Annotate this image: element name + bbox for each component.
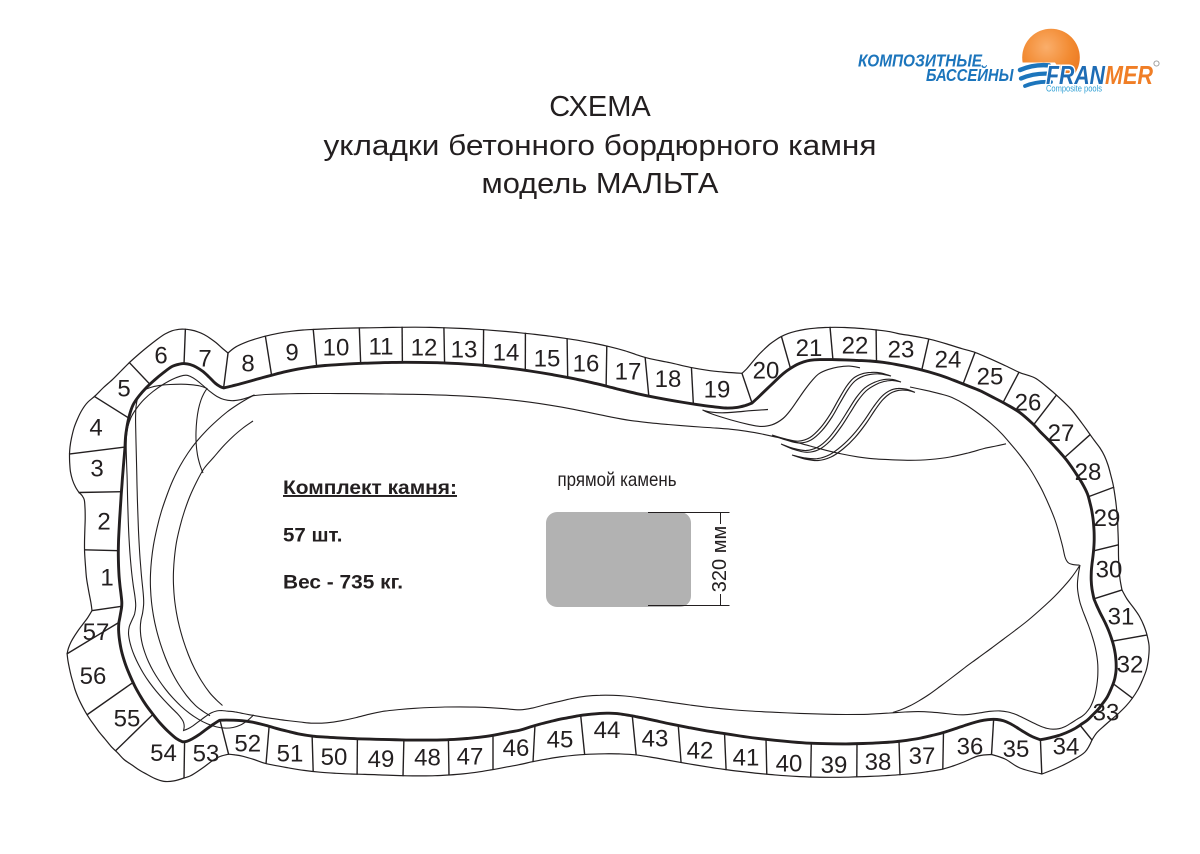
svg-text:23: 23 (888, 337, 915, 364)
svg-text:15: 15 (534, 346, 561, 373)
svg-text:44: 44 (594, 717, 621, 744)
svg-text:14: 14 (493, 340, 520, 367)
svg-text:18: 18 (655, 366, 682, 393)
svg-text:53: 53 (193, 741, 220, 768)
svg-text:26: 26 (1015, 390, 1042, 417)
svg-text:Composite pools: Composite pools (1046, 84, 1102, 95)
svg-text:47: 47 (457, 744, 484, 771)
svg-text:16: 16 (573, 351, 600, 378)
svg-text:29: 29 (1094, 505, 1121, 532)
svg-text:модель МАЛЬТА: модель МАЛЬТА (482, 168, 720, 200)
svg-text:7: 7 (198, 346, 211, 373)
svg-text:28: 28 (1075, 459, 1102, 486)
svg-text:25: 25 (977, 364, 1004, 391)
svg-text:Комплект камня:: Комплект камня: (283, 477, 457, 499)
svg-text:51: 51 (277, 741, 304, 768)
svg-text:55: 55 (114, 706, 141, 733)
svg-text:СХЕМА: СХЕМА (549, 91, 651, 123)
svg-text:35: 35 (1003, 736, 1030, 763)
svg-text:укладки бетонного бордюрного к: укладки бетонного бордюрного камня (324, 130, 877, 162)
svg-text:36: 36 (957, 734, 984, 761)
svg-text:прямой камень: прямой камень (558, 469, 677, 491)
svg-text:8: 8 (241, 351, 254, 378)
svg-text:3: 3 (90, 456, 103, 483)
svg-text:4: 4 (89, 415, 102, 442)
svg-text:11: 11 (369, 334, 394, 361)
svg-text:9: 9 (285, 340, 298, 367)
svg-text:1: 1 (100, 565, 113, 592)
svg-text:Вес - 735 кг.: Вес - 735 кг. (283, 572, 403, 594)
svg-text:52: 52 (234, 731, 261, 758)
svg-text:12: 12 (411, 335, 438, 362)
svg-text:БАССЕЙНЫ: БАССЕЙНЫ (926, 64, 1015, 85)
svg-text:41: 41 (733, 745, 760, 772)
svg-text:40: 40 (776, 751, 803, 778)
svg-text:20: 20 (753, 358, 780, 385)
svg-text:34: 34 (1053, 734, 1080, 761)
svg-text:43: 43 (642, 726, 669, 753)
svg-text:37: 37 (909, 743, 936, 770)
svg-text:45: 45 (547, 727, 574, 754)
svg-text:42: 42 (687, 738, 714, 765)
svg-text:57 шт.: 57 шт. (283, 525, 343, 547)
svg-text:17: 17 (615, 359, 642, 386)
svg-text:48: 48 (414, 745, 441, 772)
svg-text:22: 22 (842, 333, 869, 360)
svg-text:54: 54 (150, 740, 177, 767)
svg-text:21: 21 (796, 335, 823, 362)
svg-text:5: 5 (117, 376, 130, 403)
svg-text:38: 38 (865, 749, 892, 776)
svg-text:49: 49 (368, 746, 395, 773)
svg-text:31: 31 (1108, 604, 1135, 631)
svg-text:50: 50 (321, 744, 348, 771)
svg-text:30: 30 (1096, 557, 1123, 584)
svg-text:57: 57 (83, 619, 110, 646)
svg-text:33: 33 (1093, 700, 1120, 727)
svg-text:32: 32 (1117, 652, 1144, 679)
svg-text:6: 6 (154, 343, 167, 370)
svg-text:19: 19 (704, 377, 731, 404)
svg-text:46: 46 (503, 735, 530, 762)
svg-text:39: 39 (821, 752, 848, 779)
svg-text:27: 27 (1048, 420, 1075, 447)
svg-text:10: 10 (323, 335, 350, 362)
svg-text:13: 13 (451, 337, 478, 364)
svg-text:56: 56 (80, 663, 107, 690)
svg-text:2: 2 (97, 509, 110, 536)
svg-text:MER: MER (1105, 62, 1153, 90)
svg-text:320 мм: 320 мм (709, 526, 731, 592)
svg-text:24: 24 (935, 347, 962, 374)
